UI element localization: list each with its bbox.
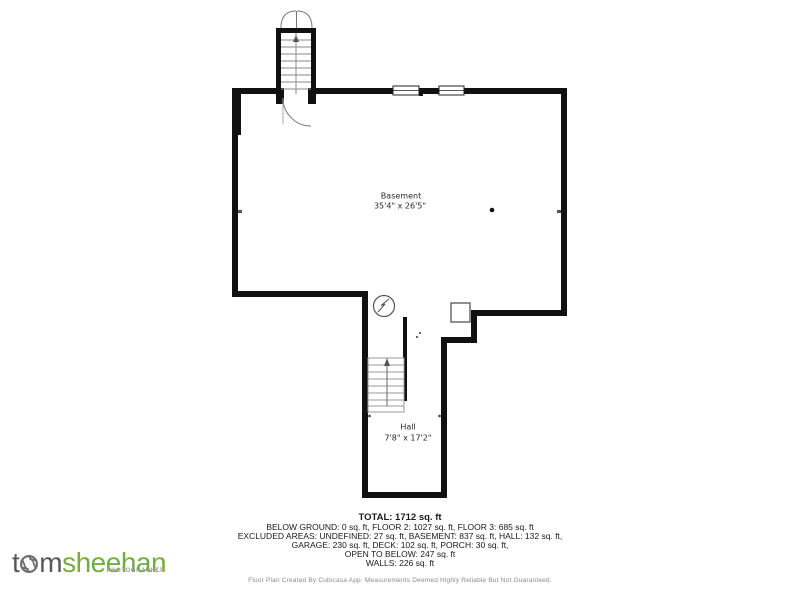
utility-circle-icon	[374, 296, 395, 317]
bottom-right-wall	[471, 310, 567, 316]
bulkhead-right-wall	[311, 28, 316, 88]
logo-text-m: m	[39, 547, 62, 578]
bulkhead-left-wall	[276, 28, 281, 88]
basement-room-dimensions: 35'4" x 26'5"	[374, 202, 426, 211]
left-wall	[232, 88, 238, 297]
logo-tagline: PHOTOGRAPHER	[107, 557, 165, 585]
floorplan-drawing	[0, 0, 800, 600]
stairs-up-arrow-icon	[281, 33, 311, 94]
hall-left-wall	[362, 291, 368, 498]
logo-text-t: t	[12, 547, 19, 578]
basement-dot-marker	[490, 208, 495, 213]
hall-room-dimensions: 7'8" x 17'2"	[384, 434, 431, 443]
aperture-icon	[19, 554, 39, 574]
chimney-block-icon	[451, 303, 470, 322]
door-jamb-right	[308, 88, 316, 104]
bottom-left-wall	[232, 291, 368, 297]
hall-bottom-wall	[362, 492, 447, 498]
door-swing-icon	[283, 98, 311, 126]
photographer-logo: t msheehan PHOTOGRAPHER	[12, 549, 166, 577]
top-wall-left	[232, 88, 276, 94]
hall-room-label: Hall	[400, 423, 415, 432]
hall-stairs-icon	[368, 358, 404, 412]
double-door-icon	[281, 11, 312, 28]
floorplan-page: Basement 35'4" x 26'5" Hall 7'8" x 17'2"…	[0, 0, 800, 600]
stair-arrowhead	[293, 35, 299, 42]
hall-right-wall	[441, 337, 447, 498]
right-wall	[561, 88, 567, 316]
bulkhead-top-wall	[276, 28, 316, 33]
wall-marker-dot	[419, 92, 423, 96]
basement-room-label: Basement	[381, 192, 421, 201]
left-wall-thick-segment	[238, 94, 241, 135]
